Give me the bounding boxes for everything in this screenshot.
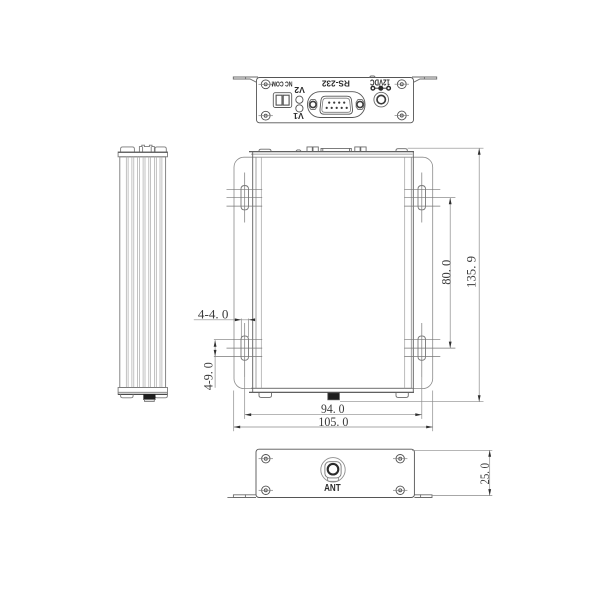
svg-text:4-9. 0: 4-9. 0 [201, 362, 216, 390]
svg-text:NC COM: NC COM [271, 80, 292, 89]
svg-text:V2: V2 [294, 85, 305, 94]
svg-text:12VDC: 12VDC [370, 77, 390, 86]
svg-text:105. 0: 105. 0 [318, 414, 348, 429]
svg-text:25. 0: 25. 0 [477, 463, 492, 485]
svg-text:RS-232: RS-232 [322, 79, 350, 89]
svg-text:ANT: ANT [324, 483, 341, 494]
svg-text:4-4. 0: 4-4. 0 [198, 307, 229, 322]
svg-text:135. 9: 135. 9 [463, 256, 478, 288]
svg-text:80. 0: 80. 0 [439, 260, 454, 285]
